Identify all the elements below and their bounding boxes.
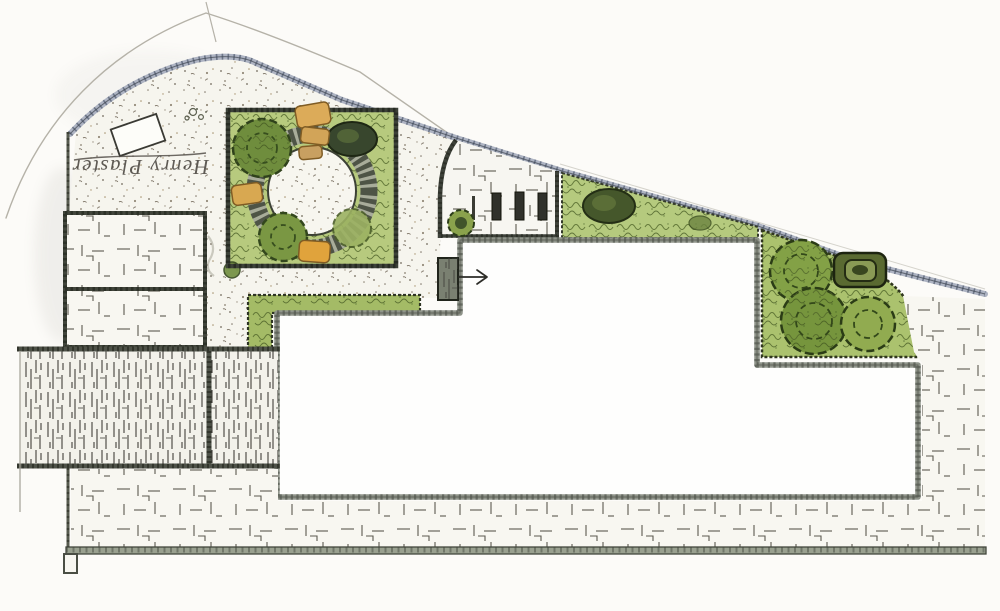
plant-doodle-dot-1 bbox=[196, 108, 198, 110]
planter-bin-1 bbox=[492, 193, 501, 220]
boundary-post bbox=[64, 554, 77, 573]
corner-shrub-northeast-highlight bbox=[337, 129, 359, 143]
planter-bin-2 bbox=[515, 192, 524, 220]
stepping-stone-west bbox=[231, 182, 263, 206]
lower-left-flagstone-texture bbox=[71, 469, 278, 547]
wedge-shrub-highlight bbox=[592, 195, 616, 211]
paving-band-texture bbox=[20, 351, 278, 464]
courtyard-corner-shrub-core bbox=[455, 217, 467, 229]
planter-bin-3 bbox=[538, 193, 547, 220]
stepping-stone-north-3 bbox=[299, 145, 323, 160]
plant-doodle-dot-2 bbox=[205, 111, 207, 113]
gate-pier-texture bbox=[438, 258, 458, 300]
stepping-stone-south bbox=[298, 240, 330, 263]
corner-shrub-southeast bbox=[333, 209, 371, 247]
south-strip-flagstone-texture bbox=[278, 501, 985, 547]
handwritten-annotation: Henry Plaster bbox=[71, 155, 210, 179]
plan-drawing: Henry Plaster bbox=[0, 0, 1000, 611]
east-shrub-left-texture bbox=[781, 288, 847, 354]
wedge-small-shrub bbox=[689, 216, 711, 230]
corner-shrub-northwest-texture bbox=[233, 119, 291, 177]
stepping-stone-north-2 bbox=[300, 126, 330, 145]
east-bed-feature-core bbox=[852, 265, 868, 275]
flagstone-terrace-texture bbox=[67, 215, 203, 345]
east-shrub-right bbox=[841, 297, 895, 351]
scanned-plan-page: Henry Plaster bbox=[0, 0, 1000, 611]
